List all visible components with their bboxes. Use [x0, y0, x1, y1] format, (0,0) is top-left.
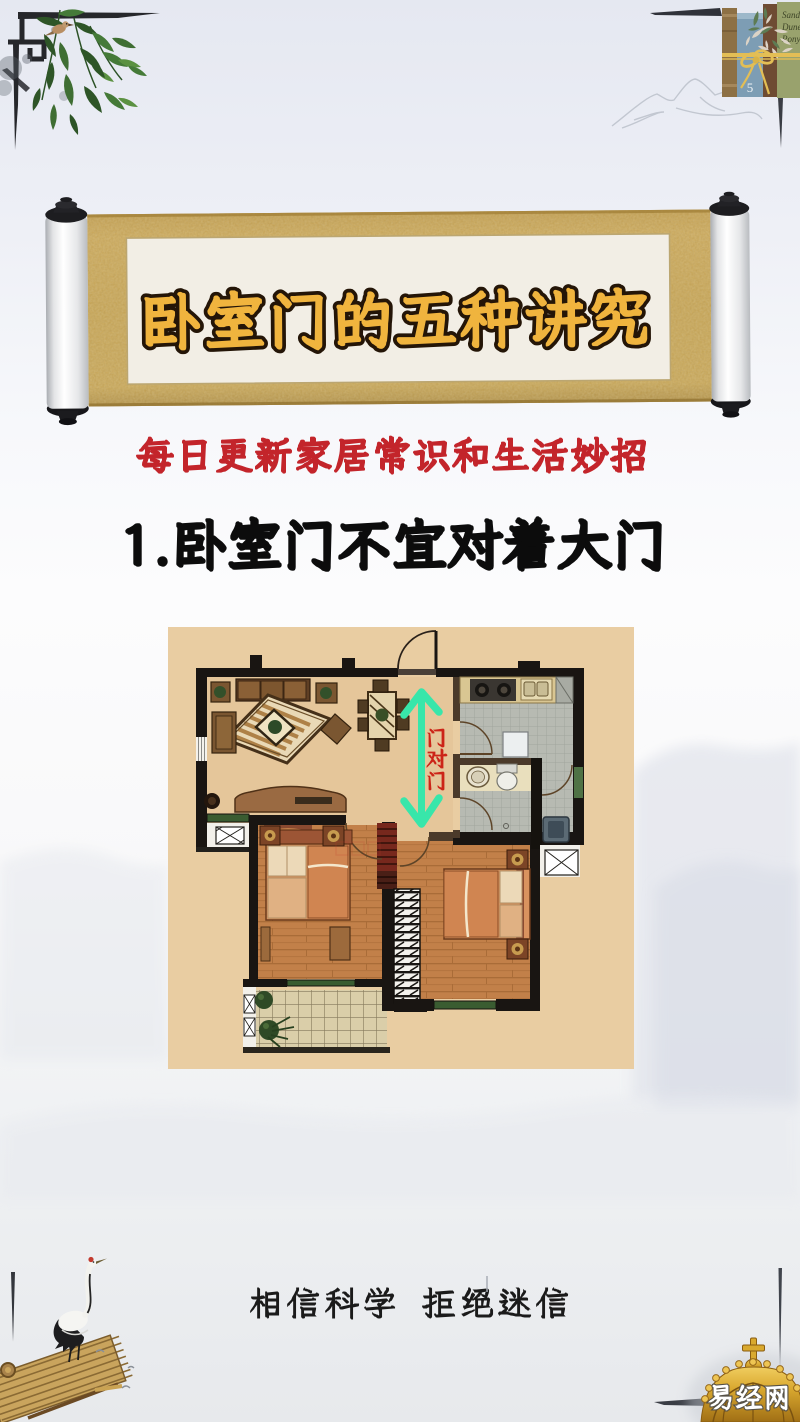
svg-text:Sand: Sand	[782, 10, 800, 20]
svg-text:5: 5	[747, 80, 754, 95]
svg-text:Pony: Pony	[781, 34, 800, 44]
